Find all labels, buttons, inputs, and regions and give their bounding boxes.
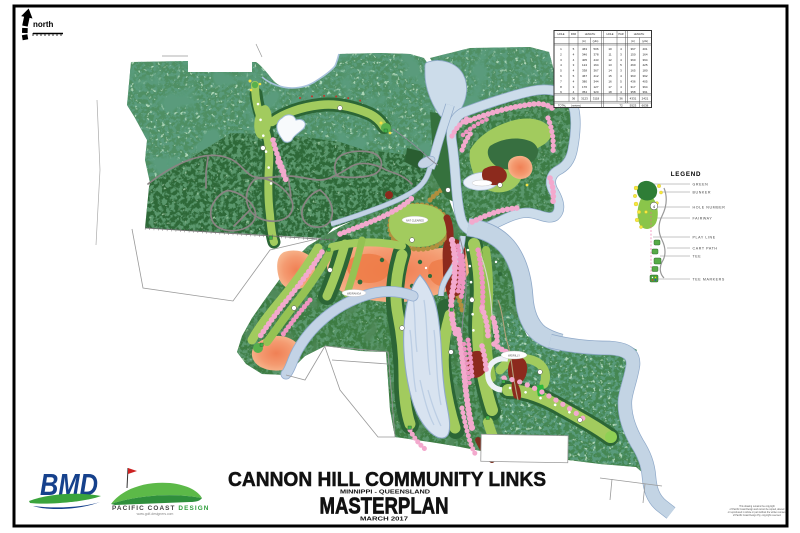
svg-text:344: 344	[593, 79, 598, 83]
svg-text:CANNON HILL COMMUNITY LINKS: CANNON HILL COMMUNITY LINKS	[228, 468, 546, 491]
svg-text:TOTAL: TOTAL	[558, 103, 567, 107]
svg-text:367: 367	[593, 69, 598, 73]
svg-text:14: 14	[608, 69, 612, 73]
svg-text:BUNKER: BUNKER	[693, 191, 712, 195]
svg-text:467: 467	[582, 74, 587, 78]
svg-text:36: 36	[572, 97, 576, 101]
svg-text:MARCH 2017: MARCH 2017	[360, 517, 408, 523]
svg-text:180: 180	[642, 69, 647, 73]
svg-text:364: 364	[642, 85, 647, 89]
svg-text:127: 127	[593, 85, 598, 89]
svg-text:WEIRANGA: WEIRANGA	[347, 292, 361, 296]
svg-text:TEE: TEE	[693, 255, 702, 259]
svg-text:(m): (m)	[582, 39, 586, 43]
svg-text:This drawing remains the copyr: This drawing remains the copyright	[739, 505, 775, 508]
svg-text:16: 16	[608, 79, 612, 83]
svg-text:of Pacific Coast Design and ca: of Pacific Coast Design and cannot be co…	[730, 508, 785, 511]
svg-text:463: 463	[582, 47, 587, 51]
svg-text:425: 425	[642, 63, 647, 67]
svg-text:PLAY LINE: PLAY LINE	[693, 236, 716, 240]
svg-text:320: 320	[593, 90, 598, 94]
svg-text:12: 12	[608, 58, 612, 62]
svg-text:4331: 4331	[630, 97, 637, 101]
svg-text:412: 412	[593, 74, 598, 78]
svg-text:PACIFIC COAST DESIGN: PACIFIC COAST DESIGN	[112, 505, 210, 512]
svg-text:380: 380	[582, 79, 587, 83]
svg-text:506: 506	[593, 47, 598, 51]
svg-text:(yds): (yds)	[642, 39, 648, 43]
svg-text:72: 72	[619, 103, 623, 107]
svg-text:165: 165	[630, 69, 635, 73]
svg-text:WEIRILLY: WEIRILLY	[508, 354, 520, 358]
svg-text:164: 164	[642, 52, 647, 56]
svg-text:TEE MARKERS: TEE MARKERS	[693, 278, 725, 282]
svg-text:NAT CLEARED: NAT CLEARED	[406, 219, 424, 223]
svg-text:338: 338	[582, 69, 587, 73]
svg-text:(m): (m)	[631, 39, 635, 43]
svg-text:394: 394	[642, 58, 647, 62]
svg-text:5523: 5523	[630, 103, 637, 107]
svg-text:401: 401	[642, 47, 647, 51]
svg-text:367: 367	[630, 47, 635, 51]
svg-text:150: 150	[630, 52, 635, 56]
svg-text:360: 360	[630, 58, 635, 62]
svg-text:PAR: PAR	[618, 32, 623, 36]
svg-text:HOLE: HOLE	[557, 32, 564, 36]
svg-text:or reproduced in whole or part: or reproduced in whole or part without t…	[728, 511, 787, 514]
svg-text:6038: 6038	[642, 103, 649, 107]
svg-text:(yds): (yds)	[593, 39, 599, 43]
svg-text:460: 460	[630, 63, 635, 67]
svg-text:405: 405	[642, 79, 647, 83]
svg-text:405: 405	[582, 58, 587, 62]
svg-text:443: 443	[593, 58, 598, 62]
svg-text:317: 317	[630, 85, 635, 89]
svg-text:346: 346	[582, 52, 587, 56]
svg-text:HOLE NUMBER: HOLE NUMBER	[693, 206, 726, 210]
svg-text:3123: 3123	[581, 97, 588, 101]
svg-text:391: 391	[642, 90, 647, 94]
svg-text:176: 176	[582, 85, 587, 89]
svg-text:LEGEND: LEGEND	[671, 171, 702, 178]
svg-text:17: 17	[608, 85, 612, 89]
svg-text:HOLE: HOLE	[606, 32, 613, 36]
svg-text:MASTERPLAN: MASTERPLAN	[320, 493, 449, 519]
svg-text:378: 378	[593, 52, 598, 56]
svg-text:164: 164	[593, 63, 598, 67]
svg-text:392: 392	[642, 74, 647, 78]
svg-text:354: 354	[582, 90, 587, 94]
svg-text:358: 358	[630, 90, 635, 94]
svg-text:CART PATH: CART PATH	[693, 247, 718, 251]
svg-text:of Pacific Coast Design Pty, c: of Pacific Coast Design Pty, copyright r…	[733, 514, 782, 517]
svg-text:2421: 2421	[642, 97, 649, 101]
svg-text:15: 15	[608, 74, 612, 78]
svg-text:18: 18	[608, 90, 612, 94]
svg-text:PAR: PAR	[571, 32, 576, 36]
svg-text:124: 124	[582, 63, 587, 67]
svg-text:13: 13	[608, 63, 612, 67]
svg-text:FAIRWAY: FAIRWAY	[693, 217, 713, 221]
svg-text:363: 363	[630, 74, 635, 78]
svg-text:north: north	[33, 20, 54, 29]
svg-text:11: 11	[608, 52, 611, 56]
svg-text:LENGTH: LENGTH	[585, 32, 596, 36]
svg-text:GREEN: GREEN	[693, 183, 709, 187]
svg-text:36: 36	[619, 97, 623, 101]
svg-text:436: 436	[630, 79, 635, 83]
svg-text:www.golf-designers.com: www.golf-designers.com	[137, 512, 174, 516]
svg-text:10: 10	[608, 47, 612, 51]
svg-text:3118: 3118	[593, 97, 600, 101]
svg-text:(metres): (metres)	[571, 103, 581, 107]
svg-text:LENGTH: LENGTH	[634, 32, 645, 36]
